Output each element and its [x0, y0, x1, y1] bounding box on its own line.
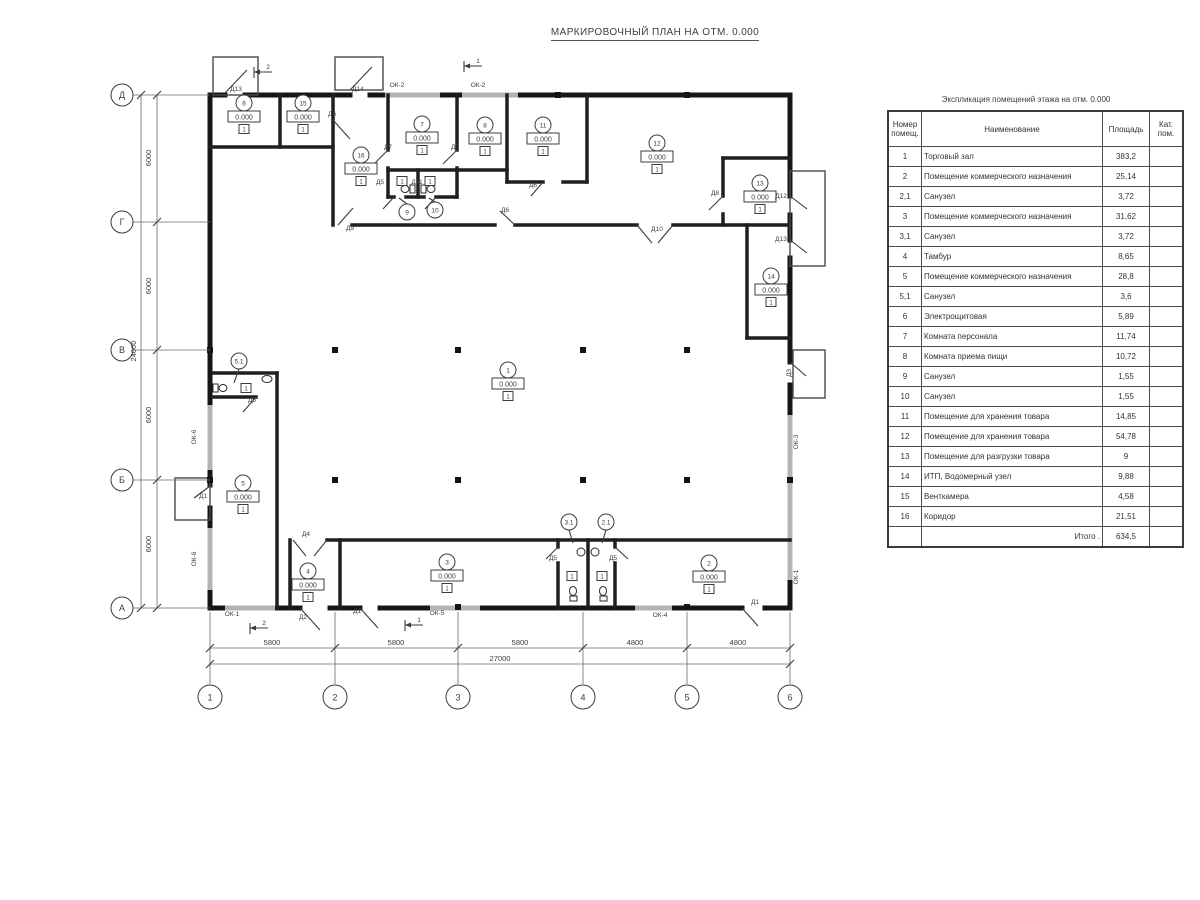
table-row: 13Помещение для разгрузки товара9: [888, 447, 1183, 467]
section-mark-arrow: [464, 64, 470, 69]
door-label: Д2: [299, 614, 307, 621]
room-number: 11: [540, 123, 547, 130]
table-row: 16Коридор21,51: [888, 507, 1183, 527]
table-cell: [1150, 487, 1184, 507]
table-cell: 3: [888, 207, 922, 227]
window-label: ОК-5: [430, 610, 445, 617]
window-label: ОК-3: [793, 434, 800, 449]
table-cell: Комната персонала: [922, 327, 1103, 347]
room-tag-leader: 5.1: [231, 353, 247, 383]
table-cell: 9: [1103, 447, 1150, 467]
table-cell: 28,8: [1103, 267, 1150, 287]
window-label: ОК-2: [471, 82, 486, 89]
table-cell: [1150, 147, 1184, 167]
table-cell: 3,72: [1103, 187, 1150, 207]
door-label: Д5: [248, 397, 256, 404]
table-row: 15Венткамера4,58: [888, 487, 1183, 507]
table-cell: [1150, 327, 1184, 347]
section-mark-number: 1: [476, 58, 480, 65]
room-tag: 140.0001: [755, 268, 787, 307]
table-cell: 6: [888, 307, 922, 327]
door-label: Д12: [775, 193, 787, 200]
door-label: Д1: [751, 599, 759, 606]
room-number: 6: [242, 101, 246, 108]
door-label: Д1: [353, 608, 361, 615]
leader-line: [399, 198, 407, 204]
header-area: Площадь: [1103, 111, 1150, 147]
table-cell: 3,6: [1103, 287, 1150, 307]
door-label: Д8: [711, 190, 719, 197]
drawing-sheet: МАРКИРОВОЧНЫЙ ПЛАН НА ОТМ. 0.000: [0, 0, 1200, 900]
dimension-text: 4800: [730, 638, 747, 647]
room-tag: 30.0001: [431, 554, 463, 593]
header-name: Наименование: [922, 111, 1103, 147]
dimension-text: 5800: [512, 638, 529, 647]
elevation-value: 0.000: [751, 195, 769, 202]
table-cell: Санузел: [922, 367, 1103, 387]
door-label: Д3: [786, 369, 793, 377]
table-cell: 12: [888, 427, 922, 447]
table-cell: 5: [888, 267, 922, 287]
exterior-walls: [210, 95, 790, 608]
table-cell: 3,72: [1103, 227, 1150, 247]
room-tag: 130.0001: [744, 175, 776, 214]
elevation-value: 0.000: [234, 495, 252, 502]
door-label: Д4: [302, 531, 310, 538]
table-cell: Помещение для хранения товара: [922, 407, 1103, 427]
interior-walls: [210, 95, 790, 608]
table-cell: 9,88: [1103, 467, 1150, 487]
table-cell: [1150, 167, 1184, 187]
room-number: 12: [653, 141, 661, 148]
room-number: 14: [767, 274, 775, 281]
dimension-text: 6000: [144, 278, 153, 295]
dimension-text: 6000: [144, 150, 153, 167]
axis-label: Б: [119, 475, 125, 485]
room-number: 9: [405, 210, 409, 217]
table-cell: Санузел: [922, 187, 1103, 207]
table-cell: [1150, 227, 1184, 247]
room-number: 7: [420, 122, 424, 129]
door-label: Д5: [609, 555, 617, 562]
axis-label: 4: [580, 693, 585, 703]
table-cell: [1150, 287, 1184, 307]
table-cell: Помещение коммерческого назначения: [922, 207, 1103, 227]
table-cell: 634,5: [1103, 527, 1150, 548]
table-row: 2,1Санузел3,72: [888, 187, 1183, 207]
room-number: 8: [483, 123, 487, 130]
table-cell: Электрощитовая: [922, 307, 1103, 327]
table-cell: [1150, 407, 1184, 427]
table-row: 11Помещение для хранения товара14,85: [888, 407, 1183, 427]
room-tag: 60.0001: [228, 95, 260, 134]
table-total-row: Итого .634,5: [888, 527, 1183, 548]
window-label: ОК-6: [191, 551, 198, 566]
table-cell: 2: [888, 167, 922, 187]
dimension-text: 5800: [388, 638, 405, 647]
table-cell: 15: [888, 487, 922, 507]
door-label: Д7: [451, 144, 459, 151]
elevation-value: 0.000: [534, 137, 552, 144]
table-cell: [1150, 187, 1184, 207]
table-cell: Комната приема пищи: [922, 347, 1103, 367]
axis-label: В: [119, 345, 125, 355]
table-cell: Помещение коммерческого назначения: [922, 267, 1103, 287]
door-label: Д7: [384, 144, 392, 151]
table-row: 3,1Санузел3,72: [888, 227, 1183, 247]
table-row: 5Помещение коммерческого назначения28,8: [888, 267, 1183, 287]
room-schedule-table: Номер помещ. Наименование Площадь Кат. п…: [887, 110, 1184, 548]
table-cell: Помещение для разгрузки товара: [922, 447, 1103, 467]
axis-label: 2: [332, 693, 337, 703]
door-label: Д6: [328, 111, 336, 118]
room-tag: 10.0001: [492, 362, 524, 401]
table-cell: 14: [888, 467, 922, 487]
room-number: 2.1: [601, 520, 610, 527]
table-cell: Венткамера: [922, 487, 1103, 507]
table-cell: 1,55: [1103, 367, 1150, 387]
section-mark-number: 2: [262, 620, 266, 627]
table-cell: 9: [888, 367, 922, 387]
table-cell: 10: [888, 387, 922, 407]
door-label: Д9: [346, 225, 354, 232]
table-row: 2Помещение коммерческого назначения25,14: [888, 167, 1183, 187]
section-mark-arrow: [250, 626, 256, 631]
table-cell: Итого .: [922, 527, 1103, 548]
elevation-value: 0.000: [648, 155, 666, 162]
room-number: 10: [431, 208, 439, 215]
window-label: ОК-1: [225, 611, 240, 618]
window-label: ОК-2: [390, 82, 405, 89]
elevation-value: 0.000: [352, 167, 370, 174]
table-cell: 7: [888, 327, 922, 347]
table-cell: Санузел: [922, 387, 1103, 407]
axis-label: Д: [119, 90, 125, 100]
table-cell: 54,78: [1103, 427, 1150, 447]
axis-label: Г: [120, 217, 125, 227]
table-cell: Торговый зал: [922, 147, 1103, 167]
room-number: 1: [506, 368, 510, 375]
window-segments: [210, 95, 790, 608]
axis-label: А: [119, 603, 125, 613]
room-tag: 70.0001: [406, 116, 438, 155]
room-tag-leader: 9: [399, 198, 415, 220]
room-number: 5: [241, 481, 245, 488]
elevation-value: 0.000: [499, 382, 517, 389]
table-cell: 11: [888, 407, 922, 427]
table-row: 1Торговый зал383,2: [888, 147, 1183, 167]
table-cell: 8: [888, 347, 922, 367]
elevation-value: 0.000: [413, 136, 431, 143]
table-cell: 21,51: [1103, 507, 1150, 527]
door-label: Д6: [529, 182, 537, 189]
table-cell: 4: [888, 247, 922, 267]
door-label: Д13: [775, 236, 787, 243]
room-tag: 110.0001: [527, 117, 559, 156]
door-label: Д5: [376, 179, 384, 186]
table-cell: 11,74: [1103, 327, 1150, 347]
table-cell: 8,65: [1103, 247, 1150, 267]
room-number: 15: [299, 101, 307, 108]
elevation-value: 0.000: [294, 115, 312, 122]
table-cell: Помещение коммерческого назначения: [922, 167, 1103, 187]
section-mark-arrow: [254, 70, 260, 75]
schedule-title: Экспликация помещений этажа на отм. 0.00…: [887, 95, 1165, 104]
room-tag: 120.0001: [641, 135, 673, 174]
header-num: Номер помещ.: [888, 111, 922, 147]
elevation-value: 0.000: [299, 583, 317, 590]
room-number: 2: [707, 561, 711, 568]
elevation-value: 0.000: [476, 137, 494, 144]
section-mark-arrow: [405, 623, 411, 628]
table-row: 12Помещение для хранения товара54,78: [888, 427, 1183, 447]
table-cell: [1150, 447, 1184, 467]
table-cell: 14,85: [1103, 407, 1150, 427]
table-cell: 10,72: [1103, 347, 1150, 367]
table-cell: [1150, 347, 1184, 367]
table-row: 3Помещение коммерческого назначения31,62: [888, 207, 1183, 227]
table-row: 6Электрощитовая5,89: [888, 307, 1183, 327]
table-row: 10Санузел1,55: [888, 387, 1183, 407]
room-number: 13: [756, 181, 764, 188]
door-label: Д11: [411, 179, 423, 186]
table-cell: [1150, 247, 1184, 267]
door-label: Д10: [651, 226, 663, 233]
dimension-text: 5800: [264, 638, 281, 647]
dimension-text: 4800: [627, 638, 644, 647]
section-mark: 1: [405, 617, 423, 631]
door-label: Д5: [549, 555, 557, 562]
section-mark-number: 1: [417, 617, 421, 624]
room-tag: 20.0001: [693, 555, 725, 594]
table-row: 4Тамбур8,65: [888, 247, 1183, 267]
door-leaves: [194, 67, 807, 630]
room-tag-leader: 10: [427, 198, 443, 218]
section-mark-number: 2: [266, 64, 270, 71]
axis-label: 1: [207, 693, 212, 703]
room-number: 4: [306, 569, 310, 576]
door-label: Д13: [230, 86, 242, 93]
room-tag: 80.0001: [469, 117, 501, 156]
room-number: 3.1: [564, 520, 573, 527]
window-label: ОК-6: [191, 429, 198, 444]
header-cat: Кат. пом.: [1150, 111, 1184, 147]
section-mark: 2: [250, 620, 268, 634]
dimension-text: 24000: [129, 341, 138, 362]
porches: [175, 57, 825, 520]
door-label: Д1: [199, 493, 207, 500]
table-cell: [1150, 367, 1184, 387]
table-row: 5,1Санузел3,6: [888, 287, 1183, 307]
table-cell: Коридор: [922, 507, 1103, 527]
room-schedule-header: Номер помещ. Наименование Площадь Кат. п…: [888, 111, 1183, 147]
table-cell: 13: [888, 447, 922, 467]
table-cell: 383,2: [1103, 147, 1150, 167]
table-row: 9Санузел1,55: [888, 367, 1183, 387]
elevation-value: 0.000: [438, 574, 456, 581]
table-cell: 25,14: [1103, 167, 1150, 187]
dimension-text: 6000: [144, 407, 153, 424]
room-tag: 160.0001: [345, 147, 377, 186]
table-cell: [1150, 207, 1184, 227]
room-tag: 50.0001: [227, 475, 259, 514]
axis-label: 5: [684, 693, 689, 703]
table-cell: 3,1: [888, 227, 922, 247]
leader-line: [234, 369, 239, 383]
table-cell: Тамбур: [922, 247, 1103, 267]
table-cell: [1150, 307, 1184, 327]
section-mark: 2: [254, 64, 272, 78]
elevation-value: 0.000: [762, 288, 780, 295]
table-cell: 1: [888, 147, 922, 167]
table-cell: 31,62: [1103, 207, 1150, 227]
table-row: 8Комната приема пищи10,72: [888, 347, 1183, 367]
axis-label: 3: [455, 693, 460, 703]
table-cell: Санузел: [922, 287, 1103, 307]
table-cell: [888, 527, 922, 548]
table-cell: [1150, 507, 1184, 527]
table-cell: 1,55: [1103, 387, 1150, 407]
door-label: Д14: [352, 86, 364, 93]
section-mark: 1: [464, 58, 482, 72]
room-number: 5.1: [234, 359, 243, 366]
elevation-value: 0.000: [235, 115, 253, 122]
window-label: ОК-1: [793, 569, 800, 584]
dimension-text: 6000: [144, 536, 153, 553]
table-cell: 4,58: [1103, 487, 1150, 507]
room-number: 16: [357, 153, 365, 160]
table-cell: Помещение для хранения товара: [922, 427, 1103, 447]
table-cell: ИТП, Водомерный узел: [922, 467, 1103, 487]
table-cell: [1150, 267, 1184, 287]
table-cell: [1150, 527, 1184, 548]
table-cell: [1150, 467, 1184, 487]
door-label: Д6: [501, 207, 509, 214]
table-cell: [1150, 427, 1184, 447]
table-row: 14ИТП, Водомерный узел9,88: [888, 467, 1183, 487]
room-tag: 150.0001: [287, 95, 319, 134]
dimension-text: 27000: [490, 654, 511, 663]
elevation-value: 0.000: [700, 575, 718, 582]
table-cell: Санузел: [922, 227, 1103, 247]
axis-label: 6: [787, 693, 792, 703]
table-cell: 5,1: [888, 287, 922, 307]
room-number: 3: [445, 560, 449, 567]
table-cell: 16: [888, 507, 922, 527]
table-cell: 5,89: [1103, 307, 1150, 327]
room-tag: 40.0001: [292, 563, 324, 602]
window-label: ОК-4: [653, 612, 668, 619]
table-row: 7Комната персонала11,74: [888, 327, 1183, 347]
table-cell: 2,1: [888, 187, 922, 207]
table-cell: [1150, 387, 1184, 407]
